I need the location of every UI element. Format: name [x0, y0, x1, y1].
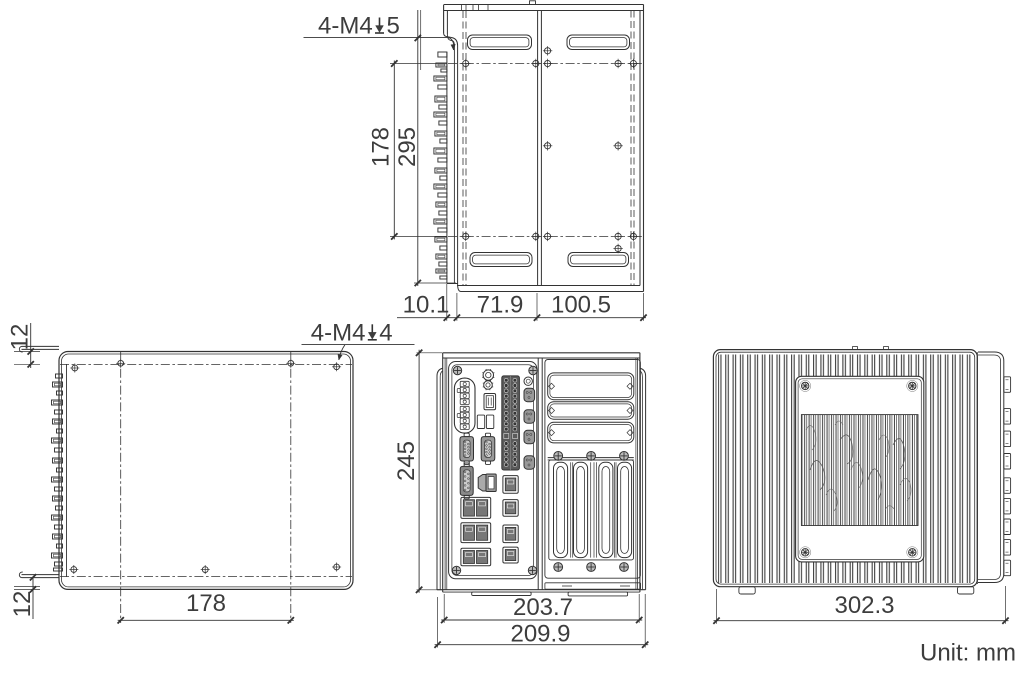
svg-text:295: 295	[394, 127, 421, 167]
svg-text:209.9: 209.9	[510, 621, 570, 648]
svg-text:100.5: 100.5	[551, 292, 611, 319]
svg-text:4: 4	[379, 319, 392, 346]
svg-text:178: 178	[368, 127, 395, 167]
svg-text:4-M4: 4-M4	[318, 13, 373, 40]
svg-text:4-M4: 4-M4	[311, 319, 366, 346]
svg-text:Unit: mm: Unit: mm	[920, 640, 1016, 667]
svg-text:71.9: 71.9	[477, 292, 524, 319]
svg-text:245: 245	[393, 441, 420, 481]
svg-text:203.7: 203.7	[513, 594, 573, 621]
svg-text:302.3: 302.3	[834, 592, 894, 619]
svg-text:12: 12	[7, 324, 34, 351]
svg-text:12: 12	[9, 591, 36, 618]
svg-text:5: 5	[387, 13, 400, 40]
svg-text:178: 178	[186, 590, 226, 617]
svg-text:10.1: 10.1	[403, 292, 450, 319]
